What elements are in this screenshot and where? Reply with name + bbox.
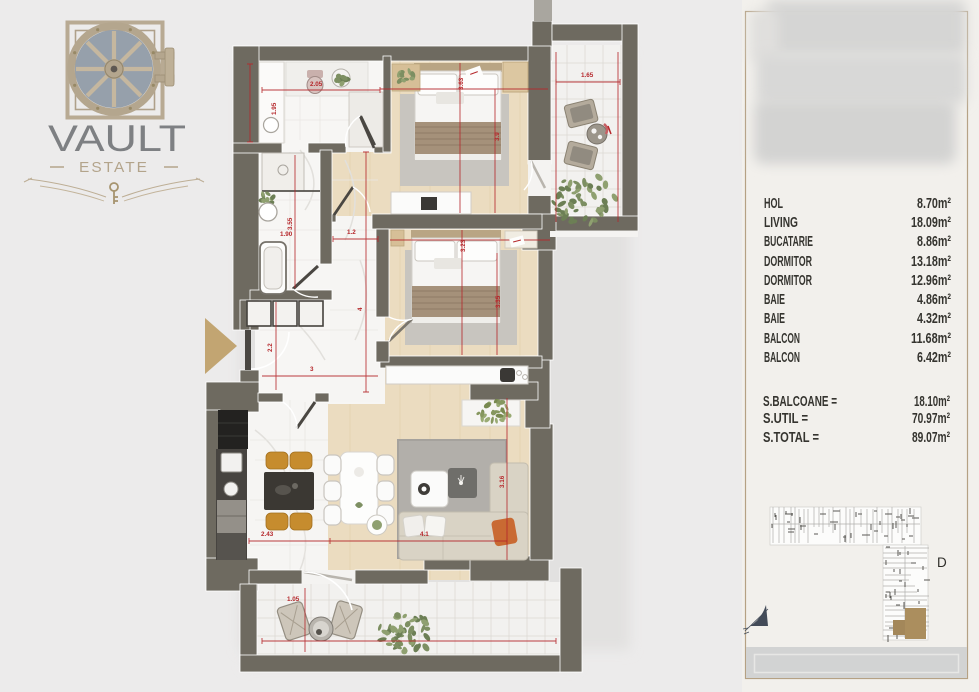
svg-text:D: D [937,555,947,570]
svg-text:3: 3 [310,366,314,373]
svg-text:BAIE: BAIE [764,310,785,327]
svg-text:70.97m²: 70.97m² [912,410,950,427]
svg-text:ESTATE: ESTATE [79,159,149,176]
svg-text:8.86m²: 8.86m² [917,233,951,250]
svg-text:3.35: 3.35 [495,295,502,308]
svg-text:18.10m²: 18.10m² [914,393,950,410]
svg-text:HOL: HOL [764,195,783,212]
svg-text:LIVING: LIVING [764,214,798,231]
svg-text:1.90: 1.90 [280,231,293,238]
svg-text:4.86m²: 4.86m² [917,291,951,308]
svg-text:S.UTIL =: S.UTIL = [763,410,808,427]
svg-text:3.55: 3.55 [287,217,294,230]
svg-text:4.1: 4.1 [420,531,429,538]
svg-text:BUCATARIE: BUCATARIE [764,233,813,250]
svg-text:1.2: 1.2 [347,229,356,236]
svg-text:3.9: 3.9 [494,132,501,141]
svg-text:11.68m²: 11.68m² [911,330,951,347]
svg-text:2.43: 2.43 [261,531,274,538]
svg-text:18.09m²: 18.09m² [911,214,951,231]
svg-text:VAULT: VAULT [48,118,186,159]
svg-text:DORMITOR: DORMITOR [764,272,812,289]
svg-text:1.65: 1.65 [581,72,594,79]
svg-text:3.23: 3.23 [460,239,467,252]
svg-text:4.32m²: 4.32m² [917,310,951,327]
svg-text:BALCON: BALCON [764,349,800,366]
svg-text:S.BALCOANE =: S.BALCOANE = [763,393,837,410]
svg-text:89.07m²: 89.07m² [912,429,950,446]
svg-text:1.05: 1.05 [287,596,300,603]
svg-text:DORMITOR: DORMITOR [764,253,812,270]
svg-text:12.96m²: 12.96m² [911,272,951,289]
svg-text:2.2: 2.2 [267,343,274,352]
svg-text:2.05: 2.05 [310,81,323,88]
svg-text:3.63: 3.63 [458,77,465,90]
svg-text:13.18m²: 13.18m² [911,253,951,270]
svg-text:8.70m²: 8.70m² [917,195,951,212]
svg-text:BAIE: BAIE [764,291,785,308]
svg-text:4: 4 [357,307,364,311]
svg-text:3.16: 3.16 [499,475,506,488]
svg-text:S.TOTAL =: S.TOTAL = [763,429,819,446]
svg-text:BALCON: BALCON [764,330,800,347]
svg-text:6.42m²: 6.42m² [917,349,951,366]
svg-text:1.95: 1.95 [271,102,278,115]
